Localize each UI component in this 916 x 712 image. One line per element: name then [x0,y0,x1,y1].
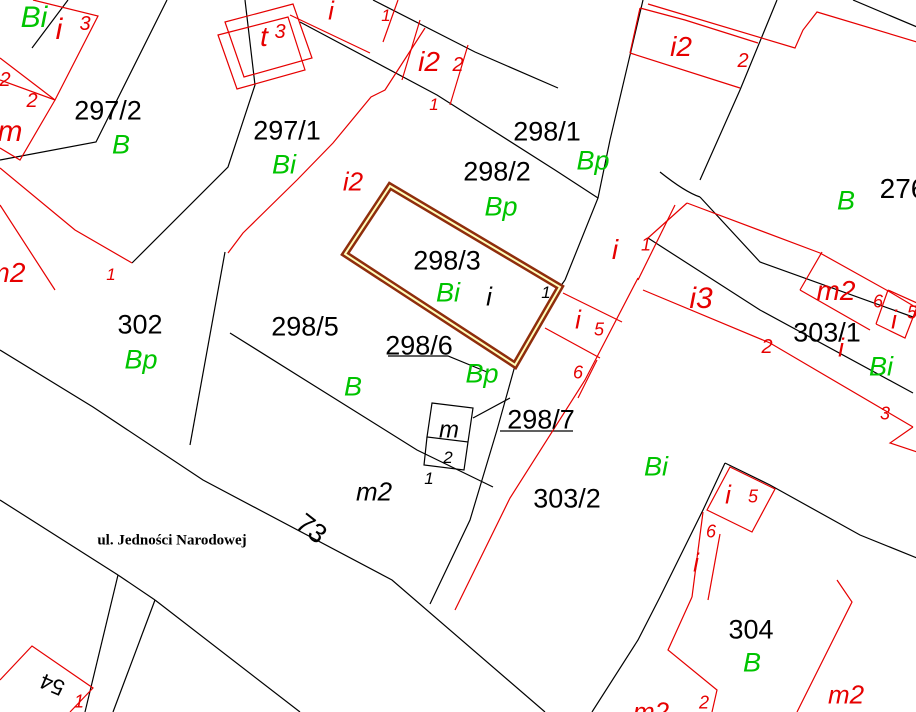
annotation-label-2: 2 [736,50,748,72]
building-use-line [890,427,916,452]
parcel-label-298-2: 298/2 [463,157,531,187]
building-use-line [708,534,720,600]
building-use-line [225,4,312,77]
annotation-label-m: m [439,417,459,444]
annotation-label-2: 2 [698,692,709,712]
annotation-label-2: 2 [442,448,453,467]
annotation-label-1: 1 [541,283,550,302]
annotation-label-2: 2 [760,336,772,358]
landuse-label-Bp: Bp [465,359,498,389]
annotation-label-i2: i2 [343,166,364,196]
annotation-label-2: 2 [25,90,37,112]
parcel-boundary-line [660,172,700,197]
annotation-label-5: 5 [907,302,916,322]
annotation-label-m: m [0,115,23,148]
annotation-label-3: 3 [79,13,90,35]
parcel-boundary-line [118,575,155,600]
annotation-label-5: 5 [748,486,759,506]
parcel-boundary-line [132,0,255,263]
building-use-line [630,8,640,53]
building-use-line [648,203,687,238]
parcel-label-54: 54 [36,668,68,701]
parcel-boundary-line [725,463,916,558]
annotation-label-1: 1 [381,6,390,25]
annotation-label-m2: m2 [817,275,856,306]
annotation-label-6: 6 [706,521,717,541]
landuse-label-Bi: Bi [21,1,49,34]
building-use-line [888,290,916,303]
landuse-label-Bp: Bp [124,345,157,375]
building-use-line [455,278,638,610]
annotation-label-2: 2 [451,54,463,76]
parcel-boundary-line [113,600,155,712]
building-use-line [668,597,717,712]
parcel-label-298-1: 298/1 [513,117,581,147]
landuse-label-Bi: Bi [272,150,297,180]
building-use-line [545,328,600,358]
landuse-label-Bp: Bp [484,192,517,222]
annotation-label-m2: m2 [828,679,865,709]
parcel-boundary-line [155,600,300,712]
parcel-label-297-1: 297/1 [253,116,321,146]
parcel-label-304: 304 [728,615,773,645]
parcel-label-298-5: 298/5 [271,312,339,342]
landuse-label-B: B [837,186,855,216]
annotation-label-6: 6 [873,291,884,311]
map-canvas[interactable]: 297/2297/1298/1298/2298/3298/5298/6298/7… [0,0,916,712]
parcel-boundary-line [230,333,493,487]
parcel-boundary-line [0,350,545,712]
parcel-label-276: 276 [880,173,916,204]
annotation-label-i: i [56,13,64,46]
annotation-label-6: 6 [573,362,584,382]
annotation-label-3: 3 [274,21,285,43]
building-use-line [707,467,775,532]
annotation-label-i2: i2 [670,31,692,62]
parcel-boundary-line [190,252,225,445]
annotation-label-t: t [260,21,269,52]
landuse-label-B: B [743,648,761,678]
annotation-label-i: i [891,304,898,334]
parcel-boundary-line [592,463,725,712]
annotation-label-i: i [575,304,582,334]
annotation-label-3: 3 [880,403,890,423]
annotation-label-1: 1 [429,95,438,114]
cadastral-map[interactable]: 297/2297/1298/1298/2298/3298/5298/6298/7… [0,0,916,712]
annotation-label-i: i [486,281,493,311]
annotation-label-1: 1 [106,265,115,284]
landuse-label-Bi: Bi [436,278,461,308]
annotation-label-5: 5 [594,319,605,339]
parcel-label-298-3: 298/3 [413,246,481,276]
annotation-label-i: i [725,479,732,509]
annotation-label-1: 1 [641,234,651,254]
annotation-label-1: 1 [74,691,84,711]
annotation-label-m2: m2 [0,257,26,288]
annotation-label-m2: m2 [633,696,670,712]
building-use-line [640,8,758,43]
landuse-label-Bp: Bp [576,146,609,176]
annotation-label-i: i [693,547,700,577]
landuse-label-Bi: Bi [869,352,894,382]
parcel-label-297-2: 297/2 [74,96,142,126]
parcel-boundary-line [373,0,558,88]
parcel-label-303-2: 303/2 [533,484,601,514]
annotation-label-i2: i2 [418,46,440,77]
annotation-label-1: 1 [424,469,433,488]
parcel-label-302: 302 [117,310,162,340]
landuse-label-Bi: Bi [644,452,669,482]
street-name-label: ul. Jedności Narodowej [97,532,246,548]
landuse-label-B: B [344,372,362,402]
annotation-label-i: i [612,234,619,265]
annotation-label-i: i [328,0,335,25]
parcel-boundary-line [473,398,510,418]
annotation-label-i3: i3 [689,282,713,315]
building-use-line [0,168,132,263]
parcel-label-73: 73 [290,507,332,549]
annotation-label-2: 2 [0,69,11,91]
parcel-boundary-line [700,0,777,180]
parcel-boundary-line [430,362,516,604]
parcel-label-298-6: 298/6 [385,331,453,361]
parcel-label-298-7: 298/7 [507,405,575,435]
annotation-label-m2: m2 [356,476,393,506]
parcel-label-303-1: 303/1 [793,318,861,348]
parcel-boundary-line [853,0,916,27]
building-use-line [563,293,622,322]
landuse-label-B: B [112,130,130,160]
